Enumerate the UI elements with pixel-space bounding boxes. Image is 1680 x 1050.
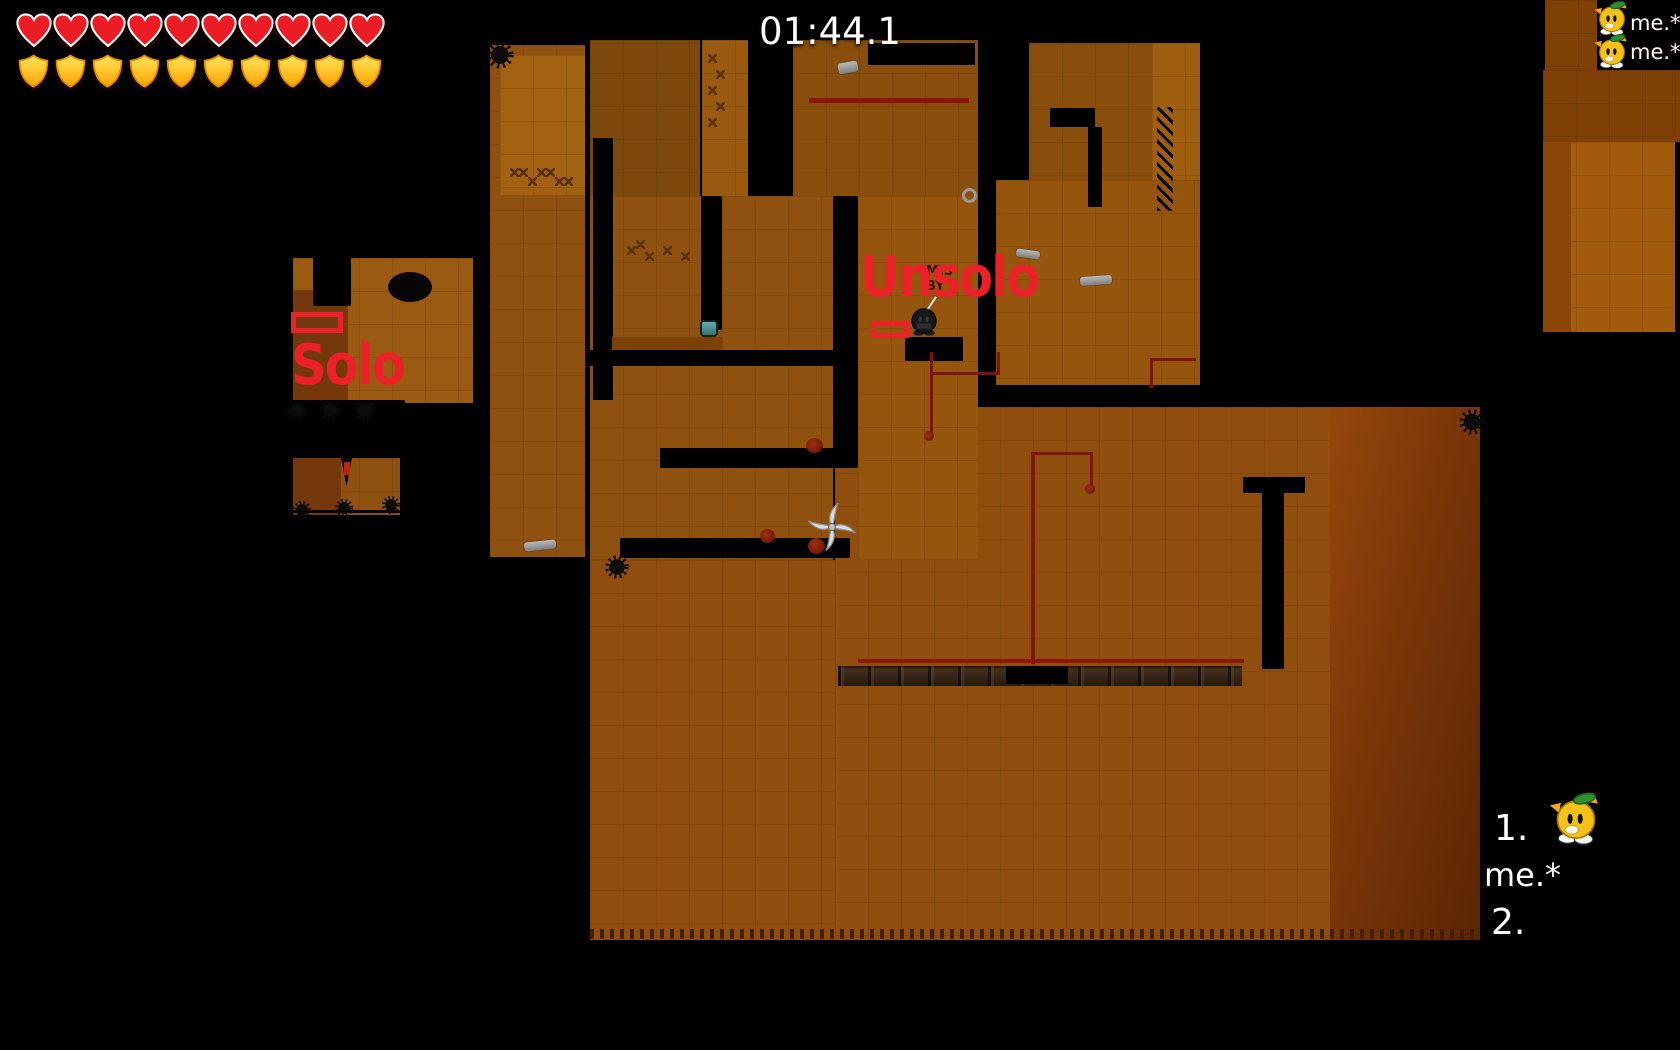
wall-corridor-top — [660, 448, 858, 468]
unsolo-zone-label: Unsolo — [860, 250, 1038, 306]
wire — [930, 372, 1000, 375]
xmark — [716, 70, 725, 79]
xmark — [555, 177, 564, 186]
wire — [1031, 452, 1093, 455]
heart-icon — [126, 12, 164, 49]
map-right-column-top — [1545, 0, 1597, 70]
wire — [1090, 452, 1093, 486]
xmark — [627, 246, 636, 255]
shuriken-icon — [804, 499, 860, 555]
wire — [1150, 358, 1153, 388]
heart-icon — [15, 12, 53, 49]
map-right-band — [1543, 70, 1680, 142]
shield-icon — [126, 52, 163, 89]
unsolo-zone-rect — [871, 321, 909, 338]
scoreboard-name-1: me.* — [1484, 856, 1561, 894]
hud-health-row — [15, 12, 385, 49]
shield-icon — [348, 52, 385, 89]
xmark — [645, 252, 654, 261]
wire — [1150, 358, 1196, 361]
heart-icon — [52, 12, 90, 49]
xmark — [636, 240, 645, 249]
xmark — [519, 168, 528, 177]
heart-icon — [237, 12, 275, 49]
gear-rail — [275, 400, 405, 403]
xmark — [681, 252, 690, 261]
wall-solo-notch — [313, 258, 351, 306]
gear-icon — [485, 40, 515, 70]
map-right-block-shade — [1543, 142, 1571, 332]
heart-icon — [89, 12, 127, 49]
bottom-dotted-edge — [590, 929, 1478, 939]
gear-icon — [334, 498, 354, 518]
solo-zone-rect — [291, 312, 343, 333]
player-tee-icon — [1594, 0, 1630, 36]
spike-light — [344, 462, 350, 475]
scoreboard-rank-1: 1. — [1494, 808, 1528, 849]
shield-icon — [200, 52, 237, 89]
shield-icon — [15, 52, 52, 89]
dark-blob — [388, 272, 432, 302]
spiral-decal — [962, 188, 977, 203]
wire — [997, 352, 1000, 374]
plates-gap — [1006, 666, 1068, 684]
xmark — [510, 168, 519, 177]
game-viewport[interactable]: MIS BY Solo Unsolo 01:44.1 me.* me.* 1. … — [0, 0, 1680, 1050]
hud-armor-row — [15, 52, 385, 89]
wall — [701, 196, 722, 330]
race-timer: 01:44.1 — [740, 10, 920, 53]
wall-gamma-stem — [1088, 127, 1102, 207]
heart-icon — [163, 12, 201, 49]
ladder-hatch — [1157, 107, 1173, 211]
xmark — [546, 168, 555, 177]
armor-pickup-icon — [700, 320, 718, 337]
xmark — [708, 54, 717, 63]
player-nametag: me.* — [1630, 40, 1680, 64]
xmark — [537, 168, 546, 177]
xmark — [716, 102, 725, 111]
heart-icon — [348, 12, 386, 49]
wall — [590, 350, 833, 366]
xmark — [528, 177, 537, 186]
wire-node — [1085, 484, 1095, 494]
gear-icon — [604, 554, 630, 580]
shield-icon — [89, 52, 126, 89]
player-tee-icon — [1594, 33, 1630, 69]
scoreboard-rank-2: 2. — [1491, 902, 1525, 943]
solo-zone-label: Solo — [291, 338, 404, 394]
mine-icon — [806, 438, 823, 453]
wall-t-stem — [1262, 477, 1284, 669]
ledge-pickup — [612, 337, 722, 350]
map-big-mass-left — [590, 560, 835, 940]
shield-icon — [52, 52, 89, 89]
mine-icon — [760, 529, 775, 543]
xmark — [708, 86, 717, 95]
heart-icon — [274, 12, 312, 49]
xmark — [708, 118, 717, 127]
player-nametag: me.* — [1630, 11, 1680, 35]
wire — [930, 352, 933, 436]
wall — [833, 196, 858, 452]
heart-icon — [200, 12, 238, 49]
heart-icon — [311, 12, 349, 49]
wire — [858, 659, 1244, 663]
wire-node — [924, 431, 934, 441]
wire — [1031, 452, 1035, 664]
map-big-mass-gradient — [1330, 407, 1480, 940]
xmark — [564, 177, 573, 186]
wire — [809, 98, 969, 103]
scoreboard-avatar-tee — [1549, 791, 1603, 845]
ledge-dark-tee — [905, 337, 963, 361]
shield-icon — [274, 52, 311, 89]
wall-gamma-bar — [1050, 108, 1095, 127]
shield-icon — [163, 52, 200, 89]
shield-icon — [237, 52, 274, 89]
gear-rail — [283, 510, 411, 513]
gear-icon — [1458, 408, 1486, 436]
xmark — [663, 246, 672, 255]
shield-icon — [311, 52, 348, 89]
